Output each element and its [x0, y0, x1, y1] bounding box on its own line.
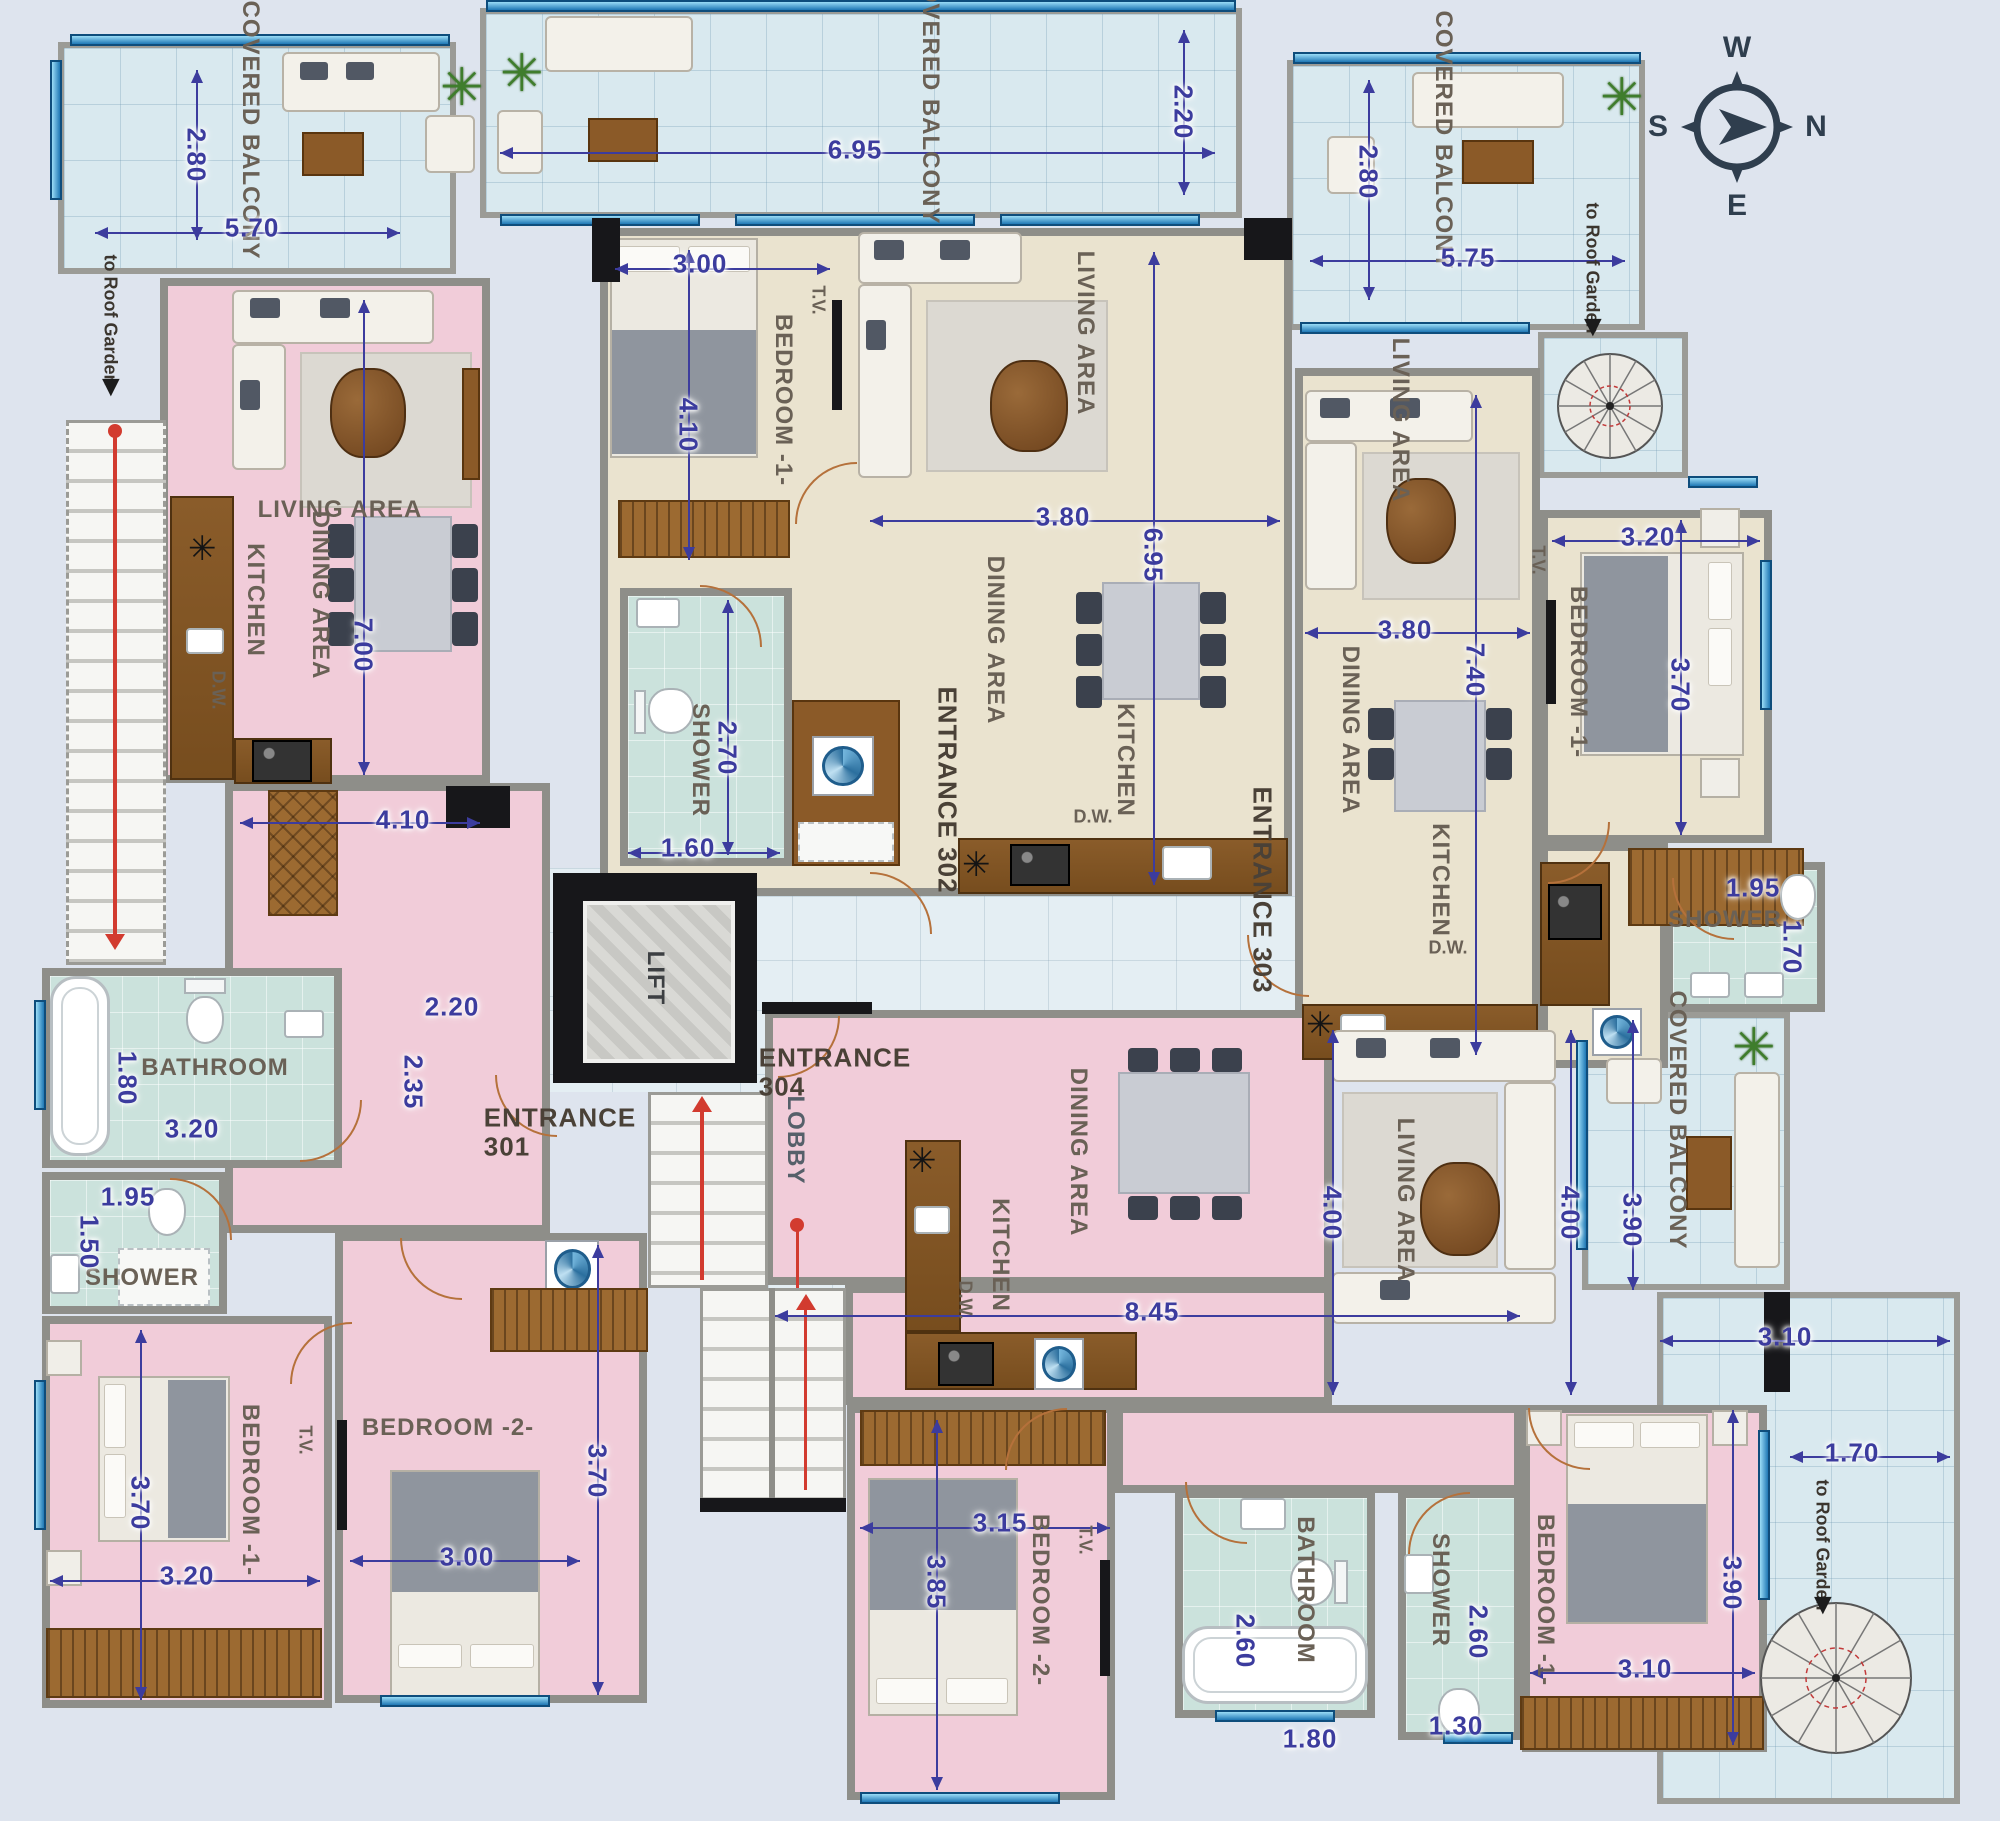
dim-label: 2.60	[1230, 1614, 1261, 1669]
dim-label: 2.80	[1353, 145, 1384, 200]
cushion	[1380, 1280, 1410, 1300]
tv-wall-unit	[832, 300, 842, 410]
dim-label: 3.20	[165, 1114, 220, 1145]
label-dw-302: D.W.	[1074, 807, 1113, 828]
wardrobe	[860, 1410, 1106, 1466]
room-label-dining-302: DINING AREA	[981, 556, 1009, 725]
cushion	[300, 62, 328, 80]
stair-direction-line	[113, 436, 117, 936]
room-label-bedroom2-301: BEDROOM -2-	[362, 1414, 534, 1442]
entrance-301-label: ENTRANCE301	[484, 1103, 636, 1160]
room-label-bedroom1-303: BEDROOM -1-	[1564, 586, 1592, 758]
room-label-living-301: LIVING AREA	[258, 496, 423, 524]
cushion	[240, 380, 260, 410]
dim-label: 4.00	[1317, 1186, 1348, 1241]
outdoor-armchair	[425, 115, 475, 173]
stove	[252, 740, 312, 782]
dim-label: 3.70	[1665, 658, 1696, 713]
outdoor-sofa	[1734, 1072, 1780, 1268]
roof-garden-arrow-icon: ▼	[96, 372, 126, 402]
dim-label: 3.00	[440, 1542, 495, 1573]
fixture-icon: ✳	[962, 848, 991, 882]
chair	[452, 568, 478, 602]
dim-label: 3.80	[1378, 615, 1433, 646]
room-label-kitchen-304: KITCHEN	[986, 1198, 1014, 1312]
toilet-tank	[184, 978, 226, 994]
kitchen-sink	[914, 1206, 950, 1234]
sofa	[1504, 1082, 1556, 1270]
sink	[636, 598, 680, 628]
room-label-shower-304: SHOWER	[1426, 1533, 1454, 1647]
dim-label: 7.00	[348, 618, 379, 673]
coffee-table	[1686, 1136, 1732, 1210]
blanket	[1584, 556, 1668, 752]
room-label-shower-303: SHOWER	[1668, 906, 1782, 934]
cushion	[250, 298, 280, 318]
apt304-hall	[1115, 1405, 1522, 1493]
dim-label: 1.60	[661, 833, 716, 864]
room-label-kitchen-303: KITCHEN	[1426, 823, 1454, 937]
window	[50, 60, 62, 200]
mat	[798, 822, 894, 862]
chair	[1486, 708, 1512, 740]
stair-landing-edge	[700, 1498, 846, 1512]
compass-letter-s: S	[1648, 110, 1668, 144]
toilet-tank	[634, 690, 646, 734]
kitchen-sink	[186, 628, 224, 654]
nightstand	[46, 1340, 82, 1376]
pillow	[1640, 1422, 1700, 1448]
compass-letter-n: N	[1805, 110, 1827, 144]
cushion	[1320, 398, 1350, 418]
dim-label: 3.20	[160, 1561, 215, 1592]
entrance-303-label: ENTRANCE 303	[1248, 786, 1277, 993]
dim-label: 2.80	[181, 128, 212, 183]
dim-line	[240, 822, 480, 824]
room-label-bedroom1-304: BEDROOM -1-	[1531, 1514, 1559, 1686]
entrance-304-label: ENTRANCE304	[759, 1043, 911, 1100]
dim-line	[1475, 395, 1477, 1055]
dim-label: 3.70	[125, 1476, 156, 1531]
dim-line	[1632, 1020, 1634, 1290]
label-dw-304: D.W.	[955, 1281, 976, 1320]
pillow	[104, 1384, 126, 1448]
spiral-stair-bottom-right	[1758, 1600, 1914, 1756]
compass-letter-e: E	[1727, 189, 1747, 223]
chair	[1200, 592, 1226, 624]
plant-icon: ✳	[1600, 72, 1644, 124]
pillow	[946, 1678, 1008, 1704]
dim-label: 2.20	[1168, 85, 1199, 140]
roof-garden-arrow-icon: ▼	[1808, 1590, 1838, 1620]
compass-letter-w: W	[1723, 31, 1751, 65]
chair	[1212, 1048, 1242, 1072]
coffee-table	[990, 360, 1068, 452]
stair-direction-arrow	[796, 1294, 816, 1310]
window	[860, 1792, 1060, 1804]
chair	[1368, 748, 1394, 780]
dining-table	[1118, 1072, 1250, 1194]
dim-label: 3.80	[1036, 502, 1091, 533]
dim-label: 2.70	[712, 721, 743, 776]
wardrobe	[268, 790, 338, 916]
plant-icon: ✳	[500, 48, 544, 100]
stove	[938, 1342, 994, 1386]
room-label-bedroom2-304: BEDROOM -2-	[1026, 1514, 1054, 1686]
fixture-icon: ✳	[188, 532, 217, 566]
coffee-table	[588, 118, 658, 162]
chair	[1486, 748, 1512, 780]
chair	[1200, 634, 1226, 666]
wall-accent	[1244, 218, 1292, 260]
window	[1688, 476, 1758, 488]
pillow	[104, 1454, 126, 1518]
lift-label: LIFT	[641, 951, 669, 1006]
blanket	[168, 1380, 226, 1538]
toilet-tank	[1334, 1560, 1348, 1604]
label-tv-301: T.V.	[295, 1425, 316, 1454]
tv-wall-unit	[1100, 1560, 1110, 1676]
entrance-302-label: ENTRANCE 302	[933, 686, 962, 893]
wardrobe	[618, 500, 790, 558]
wardrobe	[490, 1288, 648, 1352]
outdoor-chair	[1606, 1058, 1662, 1104]
room-label-living-302: LIVING AREA	[1071, 251, 1099, 416]
window	[486, 0, 1236, 12]
pillow	[398, 1644, 462, 1668]
tv-unit	[462, 368, 480, 480]
dim-label: 8.45	[1125, 1297, 1180, 1328]
compass-icon	[1675, 65, 1799, 189]
dim-label: 1.80	[1283, 1724, 1338, 1755]
fixture-icon: ✳	[908, 1144, 937, 1178]
spiral-stair-top-right	[1552, 348, 1668, 464]
chair	[1200, 676, 1226, 708]
dim-label: 6.95	[828, 135, 883, 166]
chair	[1128, 1196, 1158, 1220]
pillow	[470, 1644, 534, 1668]
kitchen-counter	[958, 838, 1288, 894]
cushion	[866, 320, 886, 350]
cushion	[1356, 1038, 1386, 1058]
dim-label: 2.60	[1463, 1605, 1494, 1660]
dim-label: 5.70	[225, 213, 280, 244]
window	[1758, 1430, 1770, 1600]
wall-accent	[762, 1002, 872, 1014]
sofa	[858, 284, 912, 478]
room-label-bedroom1-302: BEDROOM -1-	[769, 314, 797, 486]
dim-label: 4.00	[1555, 1186, 1586, 1241]
dim-label: 1.70	[1777, 920, 1808, 975]
dim-label: 1.50	[74, 1215, 105, 1270]
window	[34, 1000, 46, 1110]
window	[1000, 214, 1200, 226]
dim-label: 1.95	[101, 1182, 156, 1213]
stairs-central-upper	[648, 1092, 768, 1288]
label-tv-303: T.V.	[1528, 545, 1549, 574]
room-label-kitchen-302: KITCHEN	[1111, 703, 1139, 817]
room-label-bathroom-301: BATHROOM	[141, 1054, 289, 1082]
cushion	[940, 240, 970, 260]
label-dw-303: D.W.	[1429, 938, 1468, 959]
dim-label: 4.10	[376, 805, 431, 836]
dim-label: 3.90	[1717, 1556, 1748, 1611]
cushion	[1430, 1038, 1460, 1058]
washing-machine	[812, 736, 874, 796]
chair	[452, 524, 478, 558]
dim-label: 3.00	[673, 249, 728, 280]
toilet	[186, 996, 224, 1044]
plant-icon: ✳	[440, 62, 484, 114]
chair	[1170, 1048, 1200, 1072]
coffee-table	[330, 368, 406, 458]
room-label-shower-302: SHOWER	[686, 703, 714, 817]
label-tv-302: T.V.	[808, 285, 829, 314]
chair	[1076, 634, 1102, 666]
dining-table	[1394, 700, 1486, 812]
stair-direction-line	[804, 1300, 807, 1490]
stair-direction-arrow	[692, 1096, 712, 1112]
dim-label: 3.15	[973, 1508, 1028, 1539]
window	[1293, 52, 1641, 64]
window	[1300, 322, 1530, 334]
kitchen-sink	[1162, 846, 1212, 880]
window	[1215, 1710, 1335, 1722]
label-tv-304: T.V.	[1075, 1525, 1096, 1554]
dim-label: 3.85	[921, 1555, 952, 1610]
tv-wall-unit	[337, 1420, 347, 1530]
toilet	[1780, 874, 1816, 920]
balcony-label: COVERED BALCONY	[1663, 990, 1691, 1249]
room-label-kitchen-301: KITCHEN	[241, 543, 269, 657]
stove	[1548, 884, 1602, 940]
sofa	[1305, 442, 1357, 590]
washing-machine	[1034, 1338, 1084, 1390]
chair	[1076, 592, 1102, 624]
dim-line	[363, 300, 365, 775]
dim-label: 6.95	[1138, 528, 1169, 583]
stair-direction-line	[700, 1112, 704, 1280]
dim-label: 1.30	[1429, 1711, 1484, 1742]
cushion	[346, 62, 374, 80]
plant-icon: ✳	[1732, 1022, 1776, 1074]
tv-wall-unit	[1546, 600, 1556, 704]
blanket	[392, 1472, 538, 1592]
room-label-dining-304: DINING AREA	[1064, 1068, 1092, 1237]
sink	[1744, 972, 1784, 998]
coffee-table	[1420, 1162, 1500, 1256]
balcony-label: COVERED BALCONY	[1429, 10, 1457, 269]
room-label-bedroom1-301: BEDROOM -1-	[236, 1404, 264, 1576]
room-label-bathroom-304: BATHROOM	[1291, 1516, 1319, 1664]
lobby-label: LOBBY	[781, 1096, 809, 1185]
coffee-table	[1462, 140, 1534, 184]
window	[1760, 560, 1772, 710]
cushion	[320, 298, 350, 318]
dining-table	[1102, 582, 1200, 700]
room-label-living-303: LIVING AREA	[1386, 338, 1414, 503]
chair	[1368, 708, 1394, 740]
pillow	[1708, 562, 1732, 620]
chair	[1128, 1048, 1158, 1072]
dim-label: 1.80	[112, 1051, 143, 1106]
chair	[452, 612, 478, 646]
pillow	[876, 1678, 938, 1704]
stair-direction-arrow	[105, 934, 125, 950]
chair	[1170, 1196, 1200, 1220]
dim-label: 2.20	[425, 992, 480, 1023]
room-label-living-304: LIVING AREA	[1391, 1118, 1419, 1283]
nightstand	[1700, 758, 1740, 798]
dim-label: 7.40	[1460, 643, 1491, 698]
outdoor-sofa	[545, 16, 693, 72]
window	[34, 1380, 46, 1530]
pillow	[1708, 628, 1732, 686]
dim-label: 3.10	[1618, 1654, 1673, 1685]
dim-label: 5.75	[1441, 243, 1496, 274]
dim-label: 3.20	[1621, 522, 1676, 553]
window	[380, 1695, 550, 1707]
coffee-table	[302, 132, 364, 176]
wardrobe	[46, 1628, 322, 1698]
label-dw-301: D.W.	[208, 671, 229, 710]
sink	[284, 1010, 324, 1038]
balcony-label: COVERED BALCONY	[916, 0, 944, 225]
chair	[1076, 676, 1102, 708]
dim-label: 1.95	[1726, 873, 1781, 904]
sink	[1690, 972, 1730, 998]
room-label-dining-301: DINING AREA	[306, 511, 334, 680]
outdoor-chair	[497, 110, 543, 174]
dim-label: 3.90	[1617, 1193, 1648, 1248]
dim-label: 3.70	[582, 1444, 613, 1499]
stove	[1010, 844, 1070, 886]
nightstand	[1700, 508, 1740, 548]
outdoor-sofa	[282, 52, 440, 112]
bathtub	[50, 976, 110, 1156]
chair	[1212, 1196, 1242, 1220]
lobby-section-line	[796, 1230, 799, 1288]
room-label-dining-303: DINING AREA	[1336, 646, 1364, 815]
cushion	[874, 240, 904, 260]
floor-plan: ✳ ✳ ✳ ✳ ✳	[0, 0, 2000, 1821]
dim-label: 1.70	[1825, 1438, 1880, 1469]
dim-label: 2.35	[398, 1055, 429, 1110]
bathtub	[1182, 1626, 1368, 1704]
dim-label: 4.10	[673, 398, 704, 453]
roof-garden-arrow-icon: ▼	[1578, 312, 1608, 342]
dim-label: 3.10	[1758, 1322, 1813, 1353]
roof-garden-label: to Roof Garden	[100, 255, 121, 386]
blanket	[1568, 1504, 1706, 1622]
